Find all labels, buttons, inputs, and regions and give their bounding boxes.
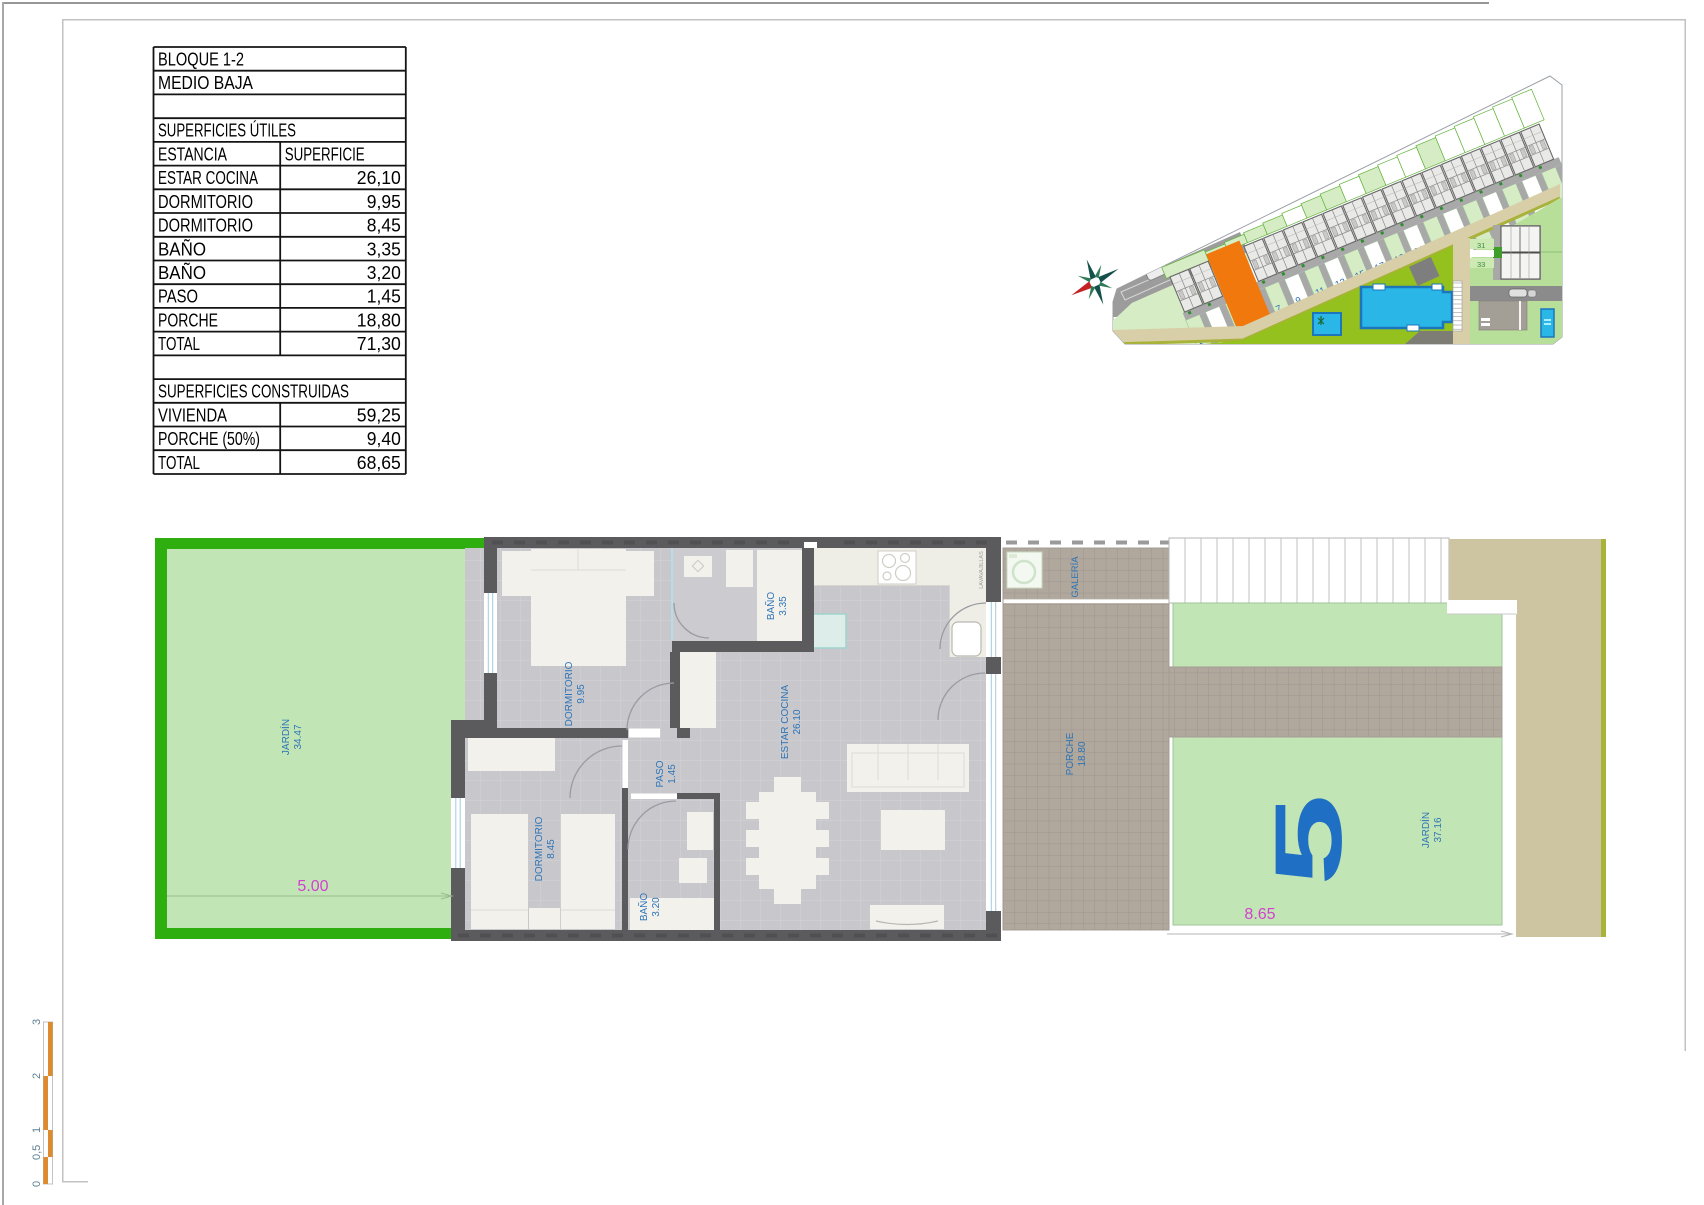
svg-text:TOTAL: TOTAL (158, 333, 200, 354)
svg-text:1: 1 (31, 1127, 43, 1133)
svg-text:BAÑO: BAÑO (158, 238, 206, 259)
svg-text:18.80: 18.80 (1077, 741, 1088, 766)
svg-text:3.35: 3.35 (778, 596, 789, 616)
svg-text:DORMITORIO: DORMITORIO (158, 215, 253, 236)
svg-text:BLOQUE 1-2: BLOQUE 1-2 (158, 49, 244, 70)
svg-text:MEDIO BAJA: MEDIO BAJA (158, 72, 254, 93)
svg-text:37.16: 37.16 (1433, 817, 1444, 842)
svg-text:VIVIENDA: VIVIENDA (158, 404, 228, 425)
svg-text:3.20: 3.20 (651, 897, 662, 917)
svg-text:DORMITORIO: DORMITORIO (564, 661, 575, 726)
svg-text:8.65: 8.65 (1244, 906, 1275, 923)
svg-text:3: 3 (31, 1019, 43, 1025)
svg-text:BAÑO: BAÑO (764, 592, 777, 621)
svg-text:18,80: 18,80 (357, 309, 401, 330)
svg-text:PORCHE: PORCHE (1065, 732, 1076, 775)
svg-text:68,65: 68,65 (357, 452, 401, 473)
svg-text:PASO: PASO (655, 760, 666, 787)
svg-text:JARDÍN: JARDÍN (279, 719, 292, 755)
svg-text:PORCHE (50%): PORCHE (50%) (158, 428, 260, 449)
svg-text:1,45: 1,45 (367, 286, 401, 307)
svg-text:8.45: 8.45 (546, 839, 557, 859)
svg-text:SUPERFICIE: SUPERFICIE (285, 143, 365, 164)
svg-text:0: 0 (31, 1181, 43, 1187)
svg-text:9.95: 9.95 (576, 684, 587, 704)
svg-text:ESTANCIA: ESTANCIA (158, 143, 228, 164)
svg-text:3,35: 3,35 (367, 238, 401, 259)
svg-text:BAÑO: BAÑO (158, 262, 206, 283)
svg-text:8,45: 8,45 (367, 215, 401, 236)
svg-text:SUPERFICIES CONSTRUIDAS: SUPERFICIES CONSTRUIDAS (158, 381, 349, 402)
svg-text:SUPERFICIES ÚTILES: SUPERFICIES ÚTILES (158, 120, 296, 141)
svg-text:34.47: 34.47 (293, 724, 304, 749)
svg-text:9,95: 9,95 (367, 191, 401, 212)
svg-text:PASO: PASO (158, 286, 198, 307)
svg-text:ESTAR COCINA: ESTAR COCINA (780, 685, 791, 760)
svg-text:DORMITORIO: DORMITORIO (534, 816, 545, 881)
svg-text:LAVAVAJILLAS: LAVAVAJILLAS (979, 551, 985, 589)
svg-text:TOTAL: TOTAL (158, 452, 200, 473)
svg-text:33: 33 (1477, 260, 1485, 269)
svg-text:26,10: 26,10 (357, 167, 401, 188)
svg-text:5: 5 (1255, 794, 1362, 886)
svg-text:2: 2 (31, 1073, 43, 1079)
svg-text:71,30: 71,30 (357, 333, 401, 354)
svg-text:31: 31 (1477, 241, 1485, 250)
svg-text:0,5: 0,5 (31, 1145, 43, 1160)
svg-text:BAÑO: BAÑO (637, 893, 650, 922)
svg-text:26.10: 26.10 (792, 709, 803, 734)
svg-text:59,25: 59,25 (357, 404, 401, 425)
svg-text:9,40: 9,40 (367, 428, 401, 449)
svg-text:ESTAR COCINA: ESTAR COCINA (158, 167, 259, 188)
svg-text:1.45: 1.45 (667, 764, 678, 784)
svg-text:5.00: 5.00 (297, 878, 328, 895)
svg-text:JARDÍN: JARDÍN (1419, 812, 1432, 848)
svg-text:PORCHE: PORCHE (158, 309, 218, 330)
svg-text:GALERÍA: GALERÍA (1070, 556, 1081, 598)
svg-text:3,20: 3,20 (367, 262, 401, 283)
svg-text:DORMITORIO: DORMITORIO (158, 191, 253, 212)
